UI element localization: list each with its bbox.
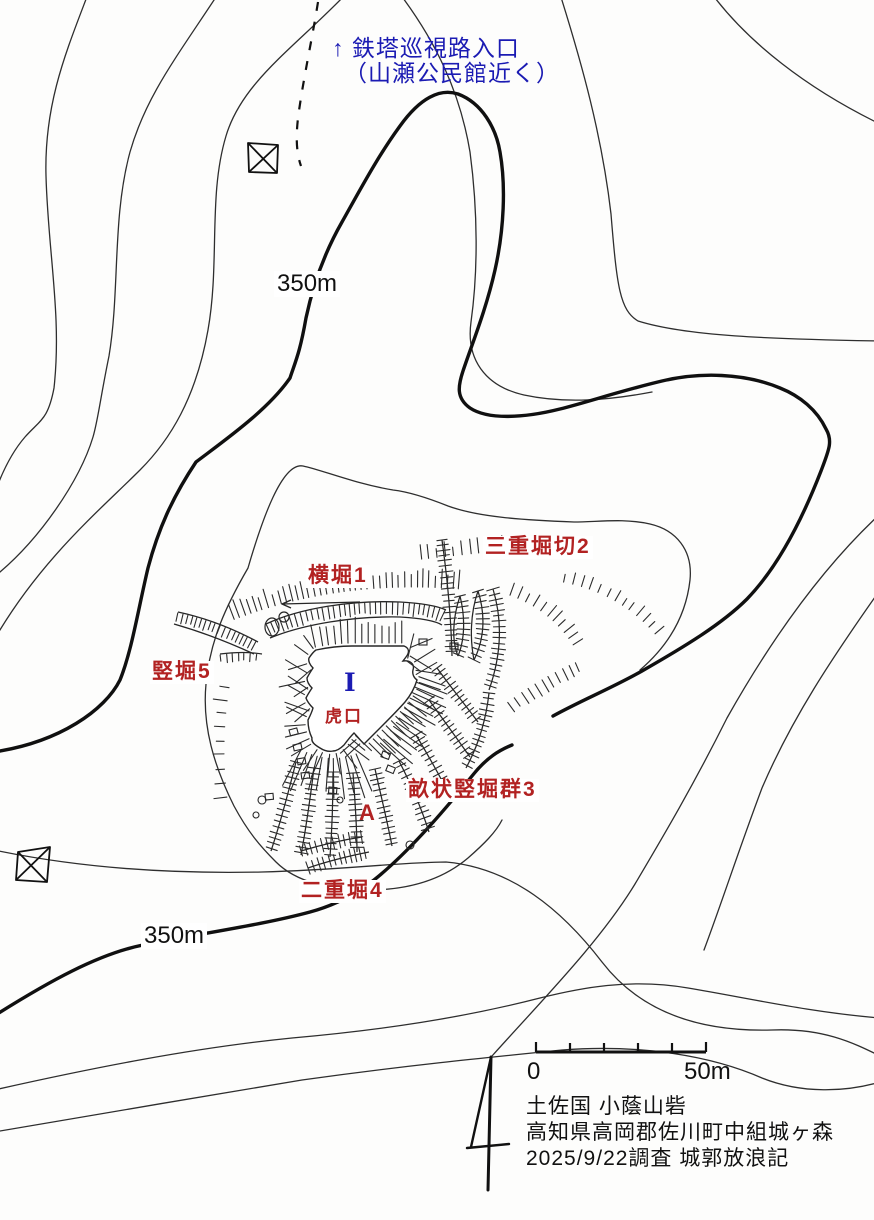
scale-bar-zero-label: 0 [527,1059,540,1085]
entrance-note: ↑ 鉄塔巡視路入口 （山瀬公民館近く） [332,36,560,86]
main-enclosure-outline [306,646,417,751]
castle-plan [174,536,664,874]
label-yokobori1: 横堀1 [306,565,370,588]
label-sanju-horikiri2: 三重堀切2 [483,536,593,559]
contour-line-350m-thick [0,92,830,1016]
entrance-note-line1: ↑ 鉄塔巡視路入口 [332,36,560,61]
map-canvas [0,0,874,1220]
contour-lines-thin [0,0,874,1132]
pylon-icon [16,847,50,882]
label-kuruwa-I: I [344,669,356,696]
north-arrow-icon [467,1057,509,1190]
pylon-icon [248,143,278,173]
scale-bar-50m-label: 50m [684,1059,731,1085]
label-nijubori4: 二重堀4 [299,880,386,903]
contour-label-350m-upper: 350m [274,271,340,297]
entrance-note-line2: （山瀬公民館近く） [344,61,560,86]
label-koguchi: 虎口 [325,708,363,726]
scale-bar [536,1042,706,1052]
credits-location: 高知県高岡郡佐川町中組城ヶ森 [526,1120,834,1146]
credits-castle-name: 土佐国 小蔭山砦 [526,1094,834,1120]
contour-label-350m-lower: 350m [141,923,207,949]
label-tatebori5: 竪堀5 [150,661,214,684]
label-point-A: A [359,801,375,825]
castle-survey-map: ↑ 鉄塔巡視路入口 （山瀬公民館近く） 350m 350m 横堀1 三重堀切2 … [0,0,874,1220]
patrol-path-dashed-line [297,2,318,166]
credits-survey: 2025/9/22調査 城郭放浪記 [526,1146,834,1172]
label-unejo-tatebori-gun3: 畝状竪堀群3 [406,779,539,802]
credits-block: 土佐国 小蔭山砦 高知県高岡郡佐川町中組城ヶ森 2025/9/22調査 城郭放浪… [526,1094,834,1172]
